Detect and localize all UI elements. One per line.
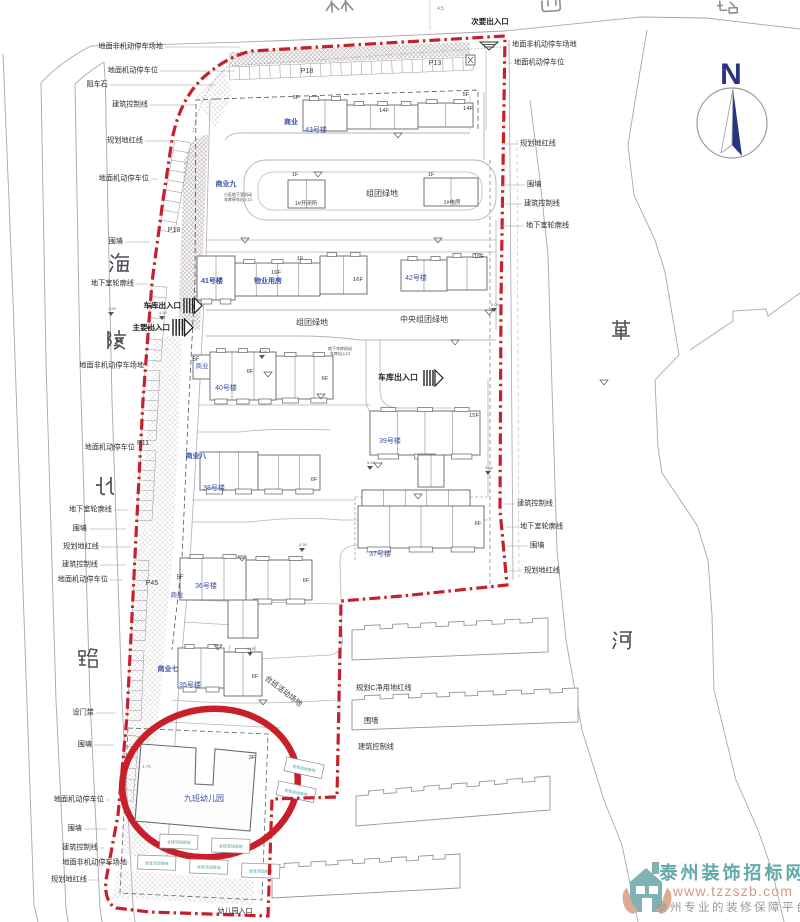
svg-text:14F: 14F — [463, 106, 473, 112]
svg-text:P45: P45 — [146, 580, 159, 587]
svg-text:围墙: 围墙 — [109, 237, 123, 246]
svg-text:围墙: 围墙 — [78, 740, 92, 749]
svg-text:建筑控制线: 建筑控制线 — [112, 100, 148, 109]
svg-text:14F: 14F — [379, 108, 389, 114]
svg-text:6F: 6F — [475, 521, 482, 527]
svg-text:规划C净用地红线: 规划C净用地红线 — [356, 683, 412, 692]
svg-text:37号楼: 37号楼 — [369, 549, 391, 558]
svg-text:43号楼: 43号楼 — [305, 125, 327, 134]
svg-text:商业: 商业 — [171, 590, 185, 599]
svg-text:地面机动停车位: 地面机动停车位 — [58, 575, 108, 584]
svg-text:6F: 6F — [252, 674, 259, 680]
svg-text:建筑控制线: 建筑控制线 — [524, 199, 560, 208]
svg-text:地面非机动停车场地: 地面非机动停车场地 — [62, 858, 127, 867]
svg-text:地面机动停车位: 地面机动停车位 — [54, 795, 104, 804]
svg-text:全班活动场地: 全班活动场地 — [219, 843, 243, 849]
svg-text:16F: 16F — [271, 270, 281, 276]
svg-text:规划地红线: 规划地红线 — [107, 136, 143, 145]
svg-text:车库出入口: 车库出入口 — [378, 372, 418, 382]
svg-text:商业八: 商业八 — [186, 451, 208, 460]
svg-text:规划地红线: 规划地红线 — [520, 139, 556, 148]
svg-text:建筑控制线: 建筑控制线 — [62, 560, 98, 569]
svg-text:建筑控制线: 建筑控制线 — [358, 742, 394, 751]
svg-text:车库出入口: 车库出入口 — [144, 300, 182, 310]
svg-text:5.00: 5.00 — [367, 460, 376, 465]
svg-text:地面机动停车位: 地面机动停车位 — [514, 58, 564, 67]
svg-text:41号楼: 41号楼 — [201, 276, 223, 285]
svg-text:围墙: 围墙 — [68, 824, 82, 833]
svg-text:中央组团绿地: 中央组团绿地 — [400, 314, 448, 324]
svg-text:www.tzzszb.com: www.tzzszb.com — [672, 883, 793, 899]
svg-text:建筑控制线: 建筑控制线 — [62, 843, 98, 852]
svg-text:5.00: 5.00 — [485, 465, 494, 470]
svg-text:6F: 6F — [247, 369, 254, 375]
svg-text:4.50: 4.50 — [108, 306, 117, 311]
svg-text:阻车石: 阻车石 — [86, 80, 108, 89]
svg-text:围墙: 围墙 — [364, 716, 378, 725]
svg-text:42号楼: 42号楼 — [405, 273, 427, 282]
svg-text:N: N — [720, 58, 742, 91]
svg-text:地面机动停车位: 地面机动停车位 — [99, 174, 149, 183]
svg-text:规划地红线: 规划地红线 — [63, 542, 99, 551]
svg-text:主要出入口: 主要出入口 — [133, 322, 171, 332]
svg-text:泰州装饰招标网: 泰州装饰招标网 — [659, 862, 800, 883]
svg-text:地面非机动停车场地: 地面非机动停车场地 — [79, 361, 144, 370]
svg-text:幼儿园入口: 幼儿园入口 — [218, 906, 253, 915]
svg-text:P18: P18 — [301, 68, 314, 75]
svg-text:5F: 5F — [176, 575, 183, 581]
svg-text:1#开闭所: 1#开闭所 — [295, 199, 318, 207]
svg-text:全班活动场地: 全班活动场地 — [167, 839, 191, 845]
svg-text:6F: 6F — [322, 376, 329, 382]
svg-text:16F: 16F — [474, 254, 484, 260]
svg-text:车库停车出入口: 车库停车出入口 — [224, 196, 252, 202]
svg-text:4.75: 4.75 — [142, 764, 151, 769]
svg-text:16F: 16F — [353, 277, 363, 283]
svg-text:组团绿地: 组团绿地 — [366, 188, 398, 198]
svg-text:地面非机动停车场地: 地面非机动停车场地 — [98, 42, 163, 51]
svg-text:全班活动场地: 全班活动场地 — [145, 860, 169, 866]
svg-text:P13: P13 — [429, 60, 442, 67]
svg-text:设门禁: 设门禁 — [72, 708, 94, 717]
svg-text:地下室轮廓线: 地下室轮廓线 — [526, 221, 569, 230]
svg-text:4.5: 4.5 — [437, 6, 444, 12]
svg-text:6F: 6F — [311, 477, 318, 483]
svg-text:组团绿地: 组团绿地 — [296, 317, 328, 327]
svg-text:6F: 6F — [293, 95, 300, 101]
svg-text:建筑控制线: 建筑控制线 — [517, 499, 553, 508]
svg-text:6F: 6F — [303, 578, 310, 584]
svg-text:物业用房: 物业用房 — [254, 276, 282, 285]
svg-text:地面非机动停车场地: 地面非机动停车场地 — [512, 40, 577, 49]
svg-text:地下室轮廓线: 地下室轮廓线 — [520, 522, 563, 531]
svg-text:38号楼: 38号楼 — [203, 483, 225, 492]
svg-text:地面机动停车位: 地面机动停车位 — [108, 66, 158, 75]
svg-text:35号楼: 35号楼 — [179, 680, 201, 689]
svg-text:围墙: 围墙 — [527, 180, 541, 189]
svg-text:15F: 15F — [469, 413, 479, 419]
svg-text:围墙: 围墙 — [530, 541, 544, 550]
svg-text:40号楼: 40号楼 — [215, 383, 237, 392]
svg-text:规划地红线: 规划地红线 — [524, 566, 560, 575]
svg-text:车库出入口: 车库出入口 — [330, 350, 350, 356]
svg-text:地下室轮廓线: 地下室轮廓线 — [69, 505, 112, 514]
svg-text:39号楼: 39号楼 — [379, 436, 401, 445]
svg-text:1F: 1F — [297, 256, 304, 262]
svg-text:地面机动停车位: 地面机动停车位 — [85, 443, 135, 452]
svg-text:商业九: 商业九 — [216, 179, 237, 188]
svg-text:九班幼儿园: 九班幼儿园 — [184, 793, 224, 803]
svg-text:1F: 1F — [428, 172, 435, 178]
svg-text:泰州专业的装修保障平台: 泰州专业的装修保障平台 — [656, 900, 800, 914]
svg-text:地下室轮廓线: 地下室轮廓线 — [91, 279, 134, 288]
svg-text:1F: 1F — [292, 172, 299, 178]
svg-text:围墙: 围墙 — [73, 524, 87, 533]
svg-text:次要出入口: 次要出入口 — [471, 16, 509, 26]
svg-text:5.00: 5.00 — [247, 646, 256, 651]
svg-text:商业: 商业 — [284, 117, 298, 126]
svg-text:5.00: 5.00 — [491, 302, 500, 307]
svg-text:5F: 5F — [463, 92, 470, 98]
svg-text:P18: P18 — [168, 227, 181, 234]
svg-text:36号楼: 36号楼 — [195, 581, 217, 590]
svg-text:规划地红线: 规划地红线 — [51, 875, 87, 884]
svg-text:5.00: 5.00 — [259, 349, 268, 354]
svg-text:4.50: 4.50 — [159, 310, 168, 315]
svg-text:全班活动场地: 全班活动场地 — [197, 864, 221, 870]
svg-text:商业: 商业 — [196, 361, 210, 370]
svg-text:5.30: 5.30 — [299, 542, 308, 547]
svg-text:商业七: 商业七 — [158, 664, 179, 673]
svg-text:3F: 3F — [249, 755, 256, 761]
svg-text:1#电房: 1#电房 — [443, 198, 461, 206]
svg-text:P11: P11 — [137, 440, 149, 447]
